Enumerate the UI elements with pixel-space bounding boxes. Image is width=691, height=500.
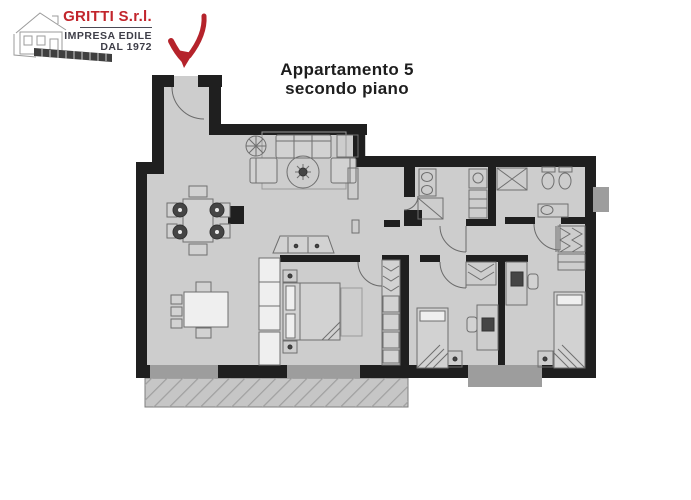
desk-chair: [528, 274, 538, 289]
sideboard: [273, 236, 334, 253]
company-tagline-line2: DAL 1972: [8, 42, 152, 53]
single-bed: [417, 308, 448, 368]
plan-title: Appartamento 5 secondo piano: [232, 60, 462, 98]
kitchen-chair: [171, 319, 182, 328]
balcony: [145, 378, 408, 407]
round-side-table: [246, 136, 266, 156]
double-bed: [283, 283, 340, 340]
kitchen-chair: [171, 307, 182, 316]
kitchen-chair: [196, 328, 211, 338]
company-name: GRITTI S.r.l.: [8, 9, 152, 25]
window-living: [150, 365, 218, 378]
threshold-bedrooms: [468, 365, 542, 387]
desk-chair: [467, 317, 477, 332]
kitchen-table: [184, 292, 228, 327]
sofa: [276, 135, 331, 158]
dining-chair: [189, 244, 207, 255]
plan-title-line2: secondo piano: [232, 79, 462, 98]
closet-shelves: [382, 260, 400, 365]
armchair-left: [250, 158, 277, 183]
entrance-arrow-icon: [171, 16, 204, 68]
armchair-right: [331, 158, 356, 183]
floor-plan-page: GRITTI S.r.l. IMPRESA EDILE DAL 1972 App…: [0, 0, 691, 500]
wardrobe-white: [259, 258, 280, 330]
company-logo: GRITTI S.r.l. IMPRESA EDILE DAL 1972: [8, 9, 152, 53]
window-master-bedroom: [287, 365, 360, 378]
kitchen-chair: [196, 282, 211, 292]
wall-block-right: [593, 187, 609, 212]
dining-table: [183, 199, 213, 242]
kitchen-chair: [171, 295, 182, 304]
dining-chair: [189, 186, 207, 197]
logo-divider: [80, 27, 152, 28]
plan-title-line1: Appartamento 5: [232, 60, 462, 79]
cabinet-white: [259, 332, 280, 365]
apartment-plan: [136, 75, 609, 407]
single-bed: [554, 292, 585, 368]
